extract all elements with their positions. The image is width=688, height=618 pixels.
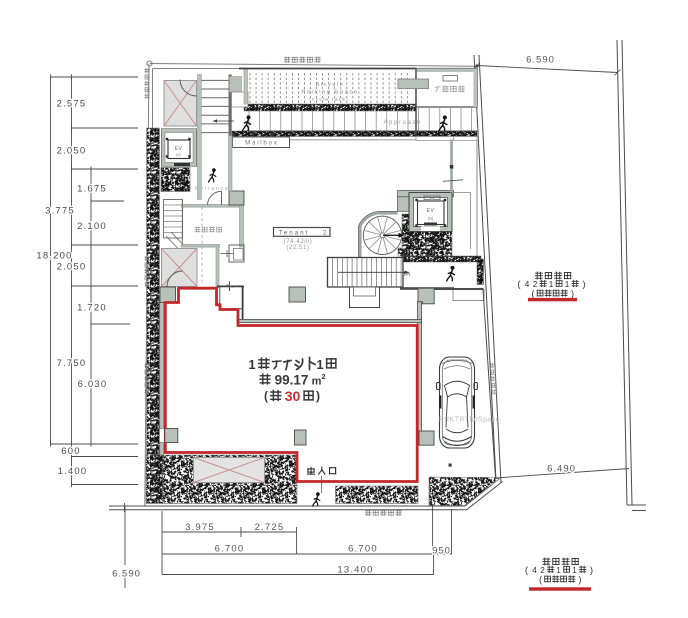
svg-text:1: 1 — [572, 566, 577, 575]
svg-text:EV: EV — [175, 146, 183, 152]
svg-text:PRKTRThoSpace: PRKTRThoSpace — [439, 417, 500, 424]
svg-text:Parking Space: Parking Space — [301, 90, 358, 96]
svg-text:1: 1 — [316, 357, 323, 372]
svg-text:(: ( — [264, 389, 268, 403]
svg-text:Tenant: Tenant — [279, 229, 309, 236]
svg-text:1: 1 — [556, 566, 561, 575]
svg-text:): ) — [590, 565, 593, 575]
svg-text:): ) — [583, 279, 586, 289]
svg-text:1.400: 1.400 — [58, 466, 88, 477]
svg-text:2.575: 2.575 — [57, 99, 87, 110]
svg-text:EV: EV — [427, 208, 435, 214]
svg-text:(: ( — [532, 289, 535, 299]
svg-text:(6): (6) — [176, 153, 181, 157]
svg-text:(: ( — [525, 565, 528, 575]
svg-text:6.590: 6.590 — [526, 55, 555, 66]
svg-text:): ) — [316, 389, 320, 403]
svg-text:(: ( — [539, 575, 542, 585]
svg-text:2.725: 2.725 — [255, 522, 285, 533]
svg-text:A p p r o a c h: A p p r o a c h — [383, 120, 420, 126]
svg-text:3.775: 3.775 — [45, 206, 75, 217]
svg-text:Bicycle: Bicycle — [316, 82, 345, 88]
svg-text:18.200: 18.200 — [36, 251, 72, 262]
svg-text:4: 4 — [532, 566, 537, 575]
svg-text:950: 950 — [432, 546, 451, 557]
svg-text:(cycle rack): (cycle rack) — [309, 97, 349, 103]
svg-text:1: 1 — [248, 357, 255, 372]
svg-text:6.490: 6.490 — [547, 464, 576, 475]
svg-text:M a i l b o x: M a i l b o x — [245, 140, 278, 147]
svg-text:6.030: 6.030 — [78, 379, 108, 390]
svg-text:): ) — [571, 289, 574, 299]
svg-text:(: ( — [518, 279, 521, 289]
svg-text:2.050: 2.050 — [57, 262, 87, 273]
svg-text:30: 30 — [285, 388, 301, 404]
svg-text:2: 2 — [322, 374, 326, 381]
svg-text:): ) — [579, 575, 582, 585]
svg-text:E n t r a n c e: E n t r a n c e — [195, 186, 228, 192]
svg-text:1.720: 1.720 — [77, 303, 107, 314]
svg-text:99.17: 99.17 — [275, 373, 309, 388]
svg-text:1.675: 1.675 — [77, 184, 107, 195]
svg-text:m: m — [312, 376, 322, 388]
svg-text:1: 1 — [565, 280, 570, 289]
svg-text:6.590: 6.590 — [112, 569, 141, 580]
svg-text:13.400: 13.400 — [337, 565, 373, 576]
svg-text:6.700: 6.700 — [348, 544, 378, 555]
svg-text:4: 4 — [525, 280, 530, 289]
svg-text:3.975: 3.975 — [185, 522, 215, 533]
svg-text:600: 600 — [61, 446, 80, 457]
svg-text:(9): (9) — [428, 216, 434, 221]
svg-text:7.750: 7.750 — [57, 358, 87, 369]
svg-text:2: 2 — [323, 229, 327, 236]
svg-text:DN: DN — [404, 272, 411, 277]
svg-text:2.100: 2.100 — [77, 221, 107, 232]
svg-text:1: 1 — [549, 280, 554, 289]
svg-text:(22.51): (22.51) — [286, 245, 309, 251]
svg-text:6.700: 6.700 — [215, 544, 245, 555]
svg-text:2.050: 2.050 — [57, 146, 87, 157]
